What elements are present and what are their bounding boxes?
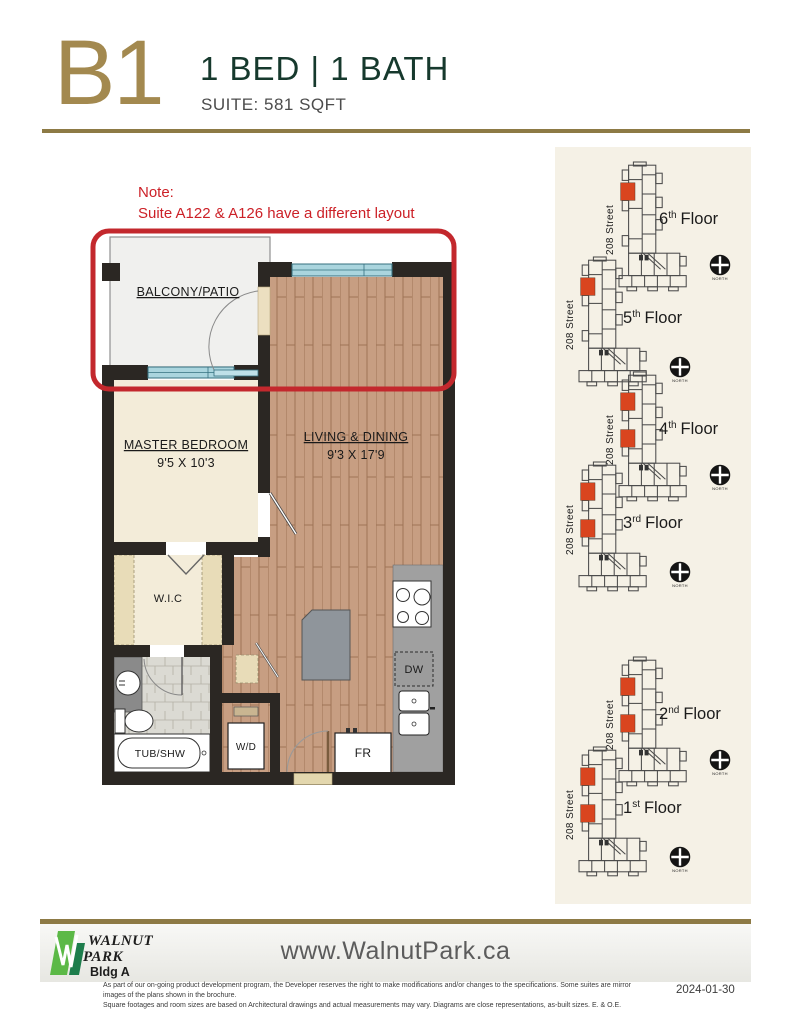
plan-subtitle: SUITE: 581 SQFT — [201, 95, 346, 115]
layout-note: Note: Suite A122 & A126 have a different… — [138, 182, 415, 224]
floor-label: 5thFloor — [623, 309, 683, 327]
entry-threshold — [294, 774, 332, 785]
keyplan-floor-3: 208 Street 3rdFloor NORTH — [555, 460, 748, 615]
toilet-tank — [115, 709, 125, 733]
plan-title: 1 BED | 1 BATH — [200, 50, 449, 88]
label-living-dining: LIVING & DINING — [304, 430, 409, 444]
svg-text:NORTH: NORTH — [672, 868, 688, 873]
note-text: Suite A122 & A126 have a different layou… — [138, 203, 415, 224]
footer-date: 2024-01-30 — [676, 984, 735, 996]
street-label: 208 Street — [605, 205, 616, 255]
balcony-doorway — [258, 287, 270, 335]
label-tub: TUB/SHW — [135, 748, 186, 760]
compass-icon: NORTH — [671, 563, 690, 589]
street-label: 208 Street — [605, 415, 616, 465]
floor-label: 4thFloor — [659, 420, 719, 438]
floor-label: 2ndFloor — [659, 705, 721, 723]
plan-code: B1 — [54, 30, 163, 117]
floor-label: 3rdFloor — [623, 514, 683, 532]
label-master-bedroom: MASTER BEDROOM — [124, 438, 248, 452]
hall-closet — [236, 655, 258, 683]
svg-text:NORTH: NORTH — [672, 583, 688, 588]
label-living-dining-dim: 9'3 X 17'9 — [327, 448, 385, 462]
kitchen-sink — [399, 691, 429, 711]
floor-label: 1stFloor — [623, 799, 682, 817]
label-wd: W/D — [236, 742, 256, 753]
label-dishwasher: DW — [405, 664, 424, 676]
street-label: 208 Street — [565, 790, 576, 840]
header-rule — [42, 129, 750, 133]
keyplan-panel: 208 Street 6thFloor NORTH 208 Street 5th… — [555, 147, 751, 904]
floorplan-drawing: BALCONY/PATIO MASTER BEDROOM 9'5 X 10'3 … — [88, 225, 463, 795]
label-wic: W.I.C — [154, 593, 182, 605]
street-label: 208 Street — [605, 700, 616, 750]
bathroom-sink — [116, 671, 140, 695]
balcony-area — [110, 237, 270, 367]
label-master-bedroom-dim: 9'5 X 10'3 — [157, 456, 215, 470]
compass-icon: NORTH — [671, 848, 690, 874]
floor-label: 6thFloor — [659, 210, 719, 228]
keyplan-floor-1: 208 Street 1stFloor NORTH — [555, 745, 748, 900]
disclaimer-line-2: Square footages and room sizes are based… — [103, 1001, 651, 1011]
label-balcony: BALCONY/PATIO — [137, 285, 240, 299]
website-url[interactable]: www.WalnutPark.ca — [0, 937, 791, 966]
brochure-page: B1 1 BED | 1 BATH SUITE: 581 SQFT Note: … — [0, 0, 791, 1024]
kitchen-island — [302, 610, 350, 680]
disclaimer: As part of our on-going product developm… — [103, 981, 651, 1011]
street-label: 208 Street — [565, 300, 576, 350]
label-fridge: FR — [355, 746, 372, 760]
toilet — [125, 710, 153, 732]
street-label: 208 Street — [565, 505, 576, 555]
building-label: Bldg A — [90, 965, 130, 979]
disclaimer-line-1: As part of our on-going product developm… — [103, 981, 651, 1001]
note-label: Note: — [138, 182, 415, 203]
